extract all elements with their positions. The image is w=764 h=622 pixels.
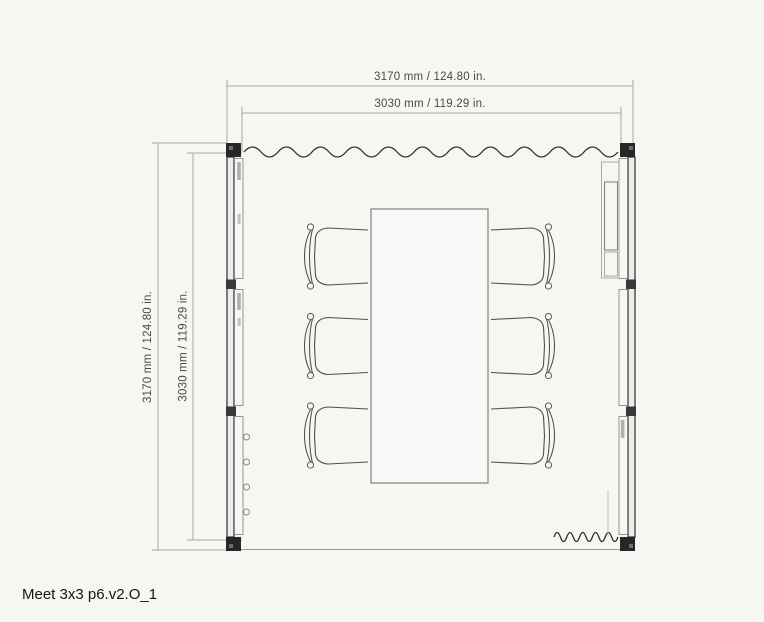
dimension-label-left-outer: 3170 mm / 124.80 in. xyxy=(142,291,154,403)
chair-left-3 xyxy=(305,403,369,468)
left-wall-connector xyxy=(226,280,236,290)
dimension-top-outer xyxy=(227,80,633,143)
corner-post-bottom-left xyxy=(226,537,241,551)
chair-right-1 xyxy=(491,224,555,289)
chair-right-3 xyxy=(491,403,555,468)
left-wall-connector xyxy=(226,407,236,417)
right-wall-panel-middle xyxy=(619,290,628,406)
left-wall-lock xyxy=(238,318,241,326)
screen-shelf xyxy=(605,252,618,276)
right-wall-connector xyxy=(626,407,636,417)
chair-right-2 xyxy=(491,313,555,378)
floor-plan-canvas: 3170 mm / 124.80 in. 3030 mm / 119.29 in… xyxy=(0,0,764,622)
conference-table xyxy=(371,209,488,483)
door-hinge xyxy=(244,484,250,490)
left-wall-panel-bottom xyxy=(235,417,244,535)
chair-left-2 xyxy=(305,313,369,378)
dimension-label-left-inner: 3030 mm / 119.29 in. xyxy=(178,290,190,401)
left-wall xyxy=(226,157,250,537)
drawing-title: Meet 3x3 p6.v2.O_1 xyxy=(22,586,157,603)
chair-left-1 xyxy=(305,224,369,289)
left-wall-lock xyxy=(238,214,241,224)
right-wall-handle xyxy=(621,420,625,438)
corner-post-top-left xyxy=(226,143,241,157)
left-wall-handle xyxy=(237,162,241,180)
door-hinge xyxy=(244,459,250,465)
screen xyxy=(605,182,618,250)
dimension-label-top-inner: 3030 mm / 119.29 in. xyxy=(374,98,485,110)
floor-plan-svg: 3170 mm / 124.80 in. 3030 mm / 119.29 in… xyxy=(0,0,764,622)
right-wall-connector xyxy=(626,280,636,290)
door-hinge xyxy=(244,509,250,515)
right-wall xyxy=(602,157,637,537)
dimension-label-top-outer: 3170 mm / 124.80 in. xyxy=(374,71,486,83)
top-curtain-wall xyxy=(244,147,618,157)
door-hinge xyxy=(244,434,250,440)
dimension-left-outer xyxy=(152,143,227,551)
dimension-top-inner xyxy=(242,107,621,152)
right-wall-panel-top xyxy=(619,159,628,279)
left-wall-handle xyxy=(237,293,241,310)
